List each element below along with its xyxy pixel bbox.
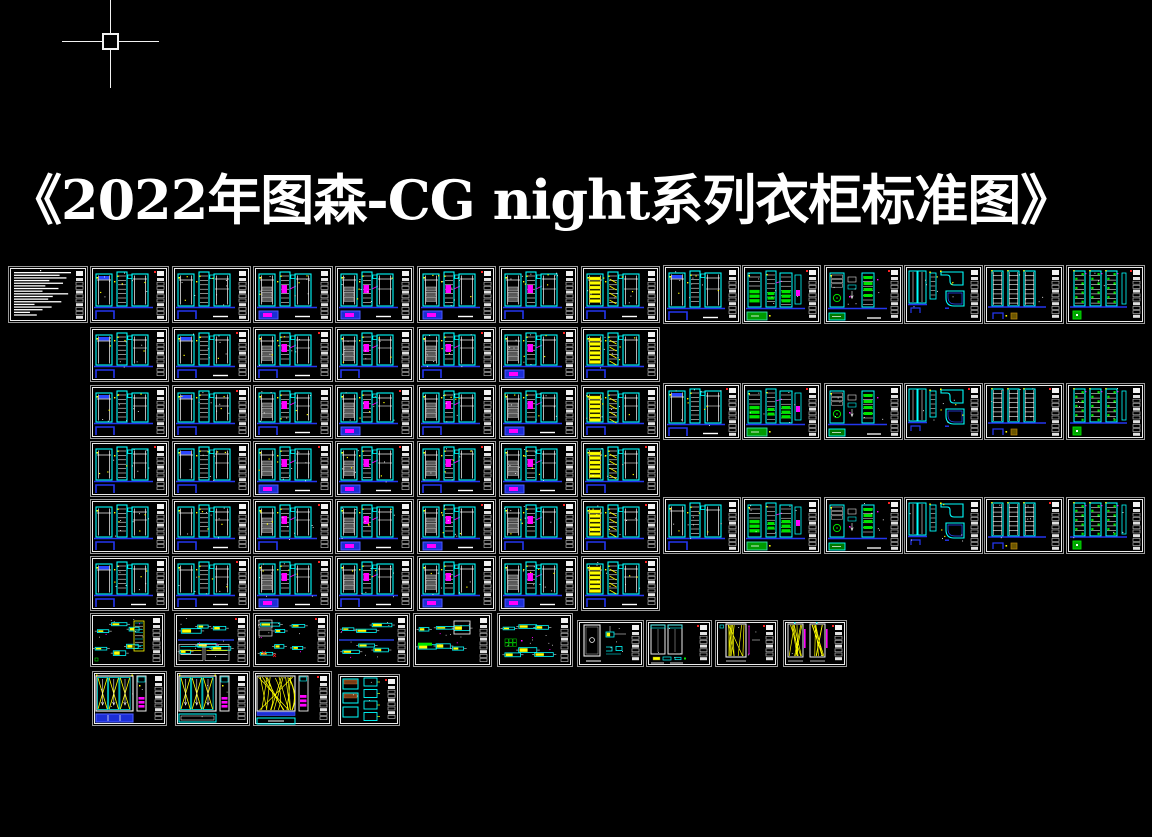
cad-canvas: 《2022年图森-CG night系列衣柜标准图》 — [0, 0, 1152, 837]
sheet-det-4[interactable] — [335, 613, 410, 667]
sheet-door-c[interactable] — [715, 620, 778, 667]
sheet-r3c9[interactable] — [742, 383, 821, 440]
sheet-r6c4[interactable] — [335, 556, 414, 611]
sheet-det-3[interactable] — [253, 613, 330, 667]
sheet-door-d[interactable] — [783, 620, 847, 667]
sheet-r2c1[interactable] — [90, 327, 169, 382]
sheet-elev-c[interactable] — [253, 671, 332, 726]
sheet-r6c3[interactable] — [253, 556, 333, 611]
sheet-r3c12[interactable] — [984, 383, 1064, 440]
sheet-r5c10[interactable] — [824, 497, 903, 554]
sheet-r5c3[interactable] — [253, 499, 333, 554]
sheet-r1c11[interactable] — [904, 265, 983, 324]
sheet-r5c12[interactable] — [984, 497, 1064, 554]
sheet-r4c1[interactable] — [90, 441, 169, 497]
sheet-r1c3[interactable] — [253, 266, 333, 323]
sheet-r5c4[interactable] — [335, 499, 414, 554]
sheet-r1c8[interactable] — [663, 265, 741, 324]
sheet-r3c13[interactable] — [1066, 383, 1145, 440]
sheet-grid — [0, 0, 1152, 837]
sheet-r3c10[interactable] — [824, 383, 903, 440]
sheet-r2c5[interactable] — [417, 327, 496, 382]
sheet-r1c4[interactable] — [335, 266, 414, 323]
sheet-r4c5[interactable] — [417, 441, 496, 497]
sheet-r1c1[interactable] — [90, 266, 169, 323]
sheet-r6c6[interactable] — [499, 556, 578, 611]
sheet-r3c8[interactable] — [663, 383, 741, 440]
sheet-r5c7[interactable] — [581, 499, 660, 554]
sheet-r6c1[interactable] — [90, 556, 169, 611]
sheet-elev-b[interactable] — [175, 671, 250, 726]
sheet-door-a[interactable] — [577, 620, 644, 667]
sheet-r3c1[interactable] — [90, 385, 169, 439]
sheet-r5c9[interactable] — [742, 497, 821, 554]
sheet-elev-a[interactable] — [92, 671, 167, 726]
sheet-det-6[interactable] — [497, 613, 573, 667]
sheet-r1c7[interactable] — [581, 266, 660, 323]
sheet-elev-d[interactable] — [338, 674, 400, 726]
sheet-r3c4[interactable] — [335, 385, 414, 439]
sheet-det-1[interactable] — [90, 613, 165, 667]
sheet-r5c8[interactable] — [663, 497, 741, 554]
sheet-r4c3[interactable] — [253, 441, 333, 497]
sheet-r2c2[interactable] — [172, 327, 251, 382]
sheet-r2c4[interactable] — [335, 327, 414, 382]
sheet-r1c5[interactable] — [417, 266, 496, 323]
sheet-r6c2[interactable] — [172, 556, 251, 611]
sheet-r4c4[interactable] — [335, 441, 414, 497]
sheet-r3c7[interactable] — [581, 385, 660, 439]
sheet-r3c3[interactable] — [253, 385, 333, 439]
sheet-r3c11[interactable] — [904, 383, 983, 440]
sheet-r1c9[interactable] — [742, 265, 821, 324]
sheet-r1c6[interactable] — [499, 266, 578, 323]
sheet-r1c13[interactable] — [1066, 265, 1145, 324]
sheet-r3c5[interactable] — [417, 385, 496, 439]
sheet-r5c13[interactable] — [1066, 497, 1145, 554]
sheet-r6c5[interactable] — [417, 556, 496, 611]
sheet-r2c3[interactable] — [253, 327, 333, 382]
crosshair-pickbox — [102, 33, 119, 50]
sheet-r1c12[interactable] — [984, 265, 1064, 324]
sheet-r4c7[interactable] — [581, 441, 660, 497]
sheet-det-5[interactable] — [413, 613, 492, 667]
sheet-r4c6[interactable] — [499, 441, 578, 497]
sheet-r2c6[interactable] — [499, 327, 578, 382]
sheet-r2c7[interactable] — [581, 327, 660, 382]
sheet-door-b[interactable] — [646, 620, 712, 667]
sheet-r5c6[interactable] — [499, 499, 578, 554]
sheet-r5c1[interactable] — [90, 499, 169, 554]
sheet-r1c2[interactable] — [172, 266, 251, 323]
sheet-r1c10[interactable] — [824, 265, 903, 324]
sheet-r5c11[interactable] — [904, 497, 983, 554]
sheet-r6c7[interactable] — [581, 556, 660, 611]
sheet-notes-sheet[interactable] — [8, 266, 88, 323]
sheet-r3c6[interactable] — [499, 385, 578, 439]
sheet-r5c2[interactable] — [172, 499, 251, 554]
sheet-r3c2[interactable] — [172, 385, 251, 439]
sheet-r5c5[interactable] — [417, 499, 496, 554]
sheet-det-2[interactable] — [174, 613, 250, 667]
sheet-r4c2[interactable] — [172, 441, 251, 497]
